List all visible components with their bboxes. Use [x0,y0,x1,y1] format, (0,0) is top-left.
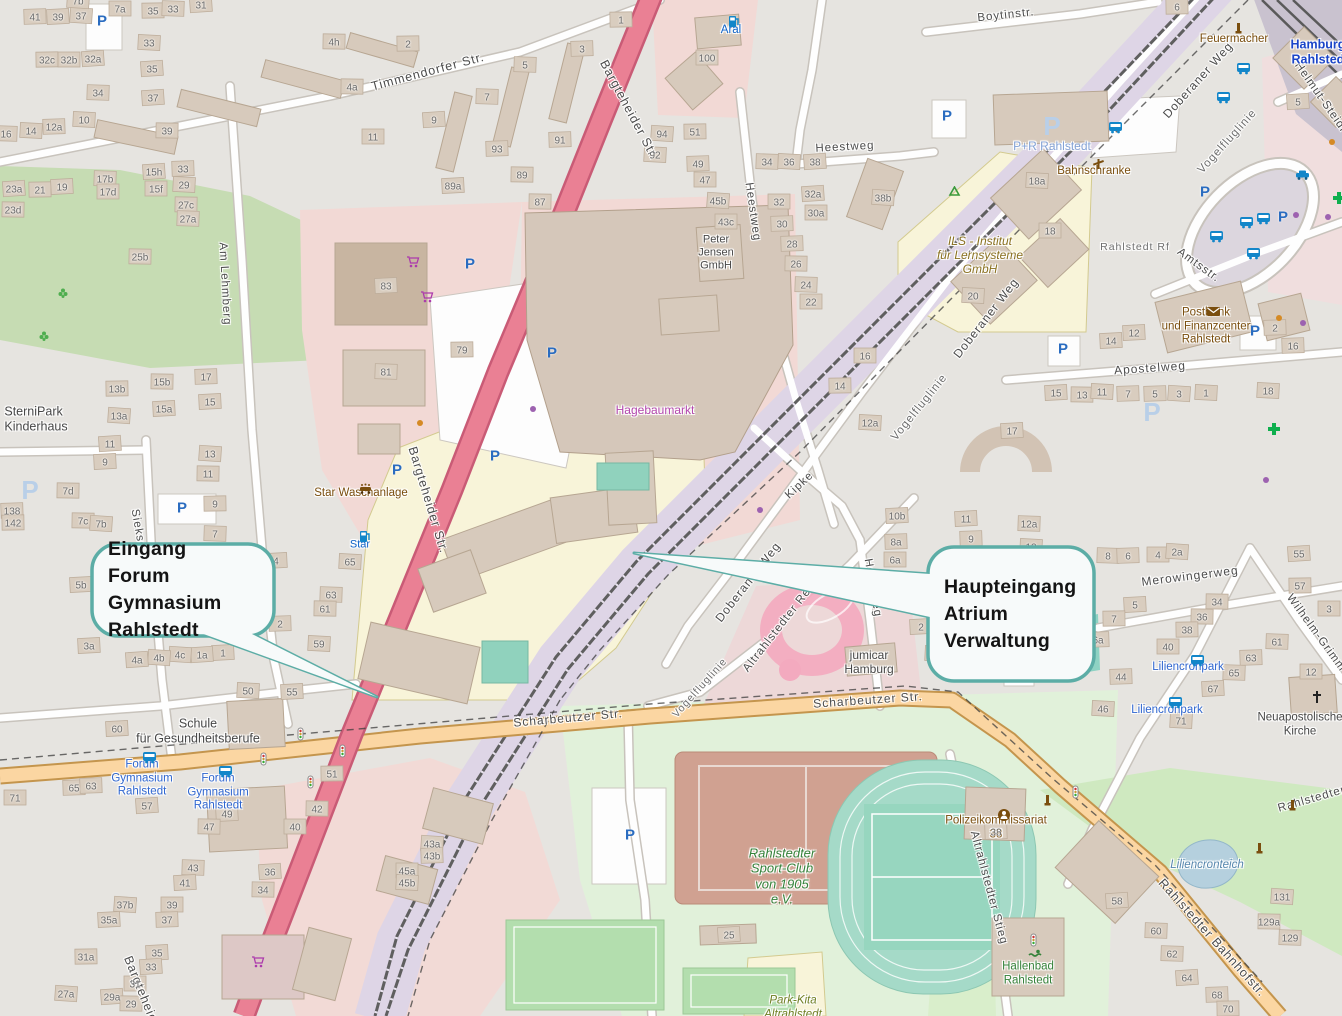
callout-haupteingang-atrium: Haupteingang Atrium Verwaltung [928,547,1094,681]
map-canvas[interactable]: Timmendorfer Str.Bargteheider Str.Bargte… [0,0,1342,1016]
callout-eingang-forum-gymnasium: Eingang Forum Gymnasium Rahlstedt [92,544,274,636]
callout-graphics [0,0,1342,1016]
